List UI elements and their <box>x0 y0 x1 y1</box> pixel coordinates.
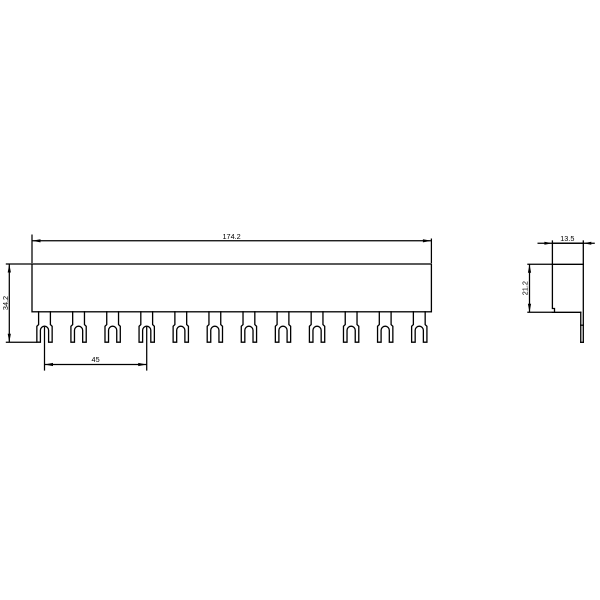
svg-text:45: 45 <box>92 355 100 364</box>
svg-text:13.5: 13.5 <box>560 234 574 243</box>
svg-text:34.2: 34.2 <box>1 296 10 310</box>
svg-text:21.2: 21.2 <box>520 281 529 295</box>
svg-text:174.2: 174.2 <box>222 232 240 241</box>
